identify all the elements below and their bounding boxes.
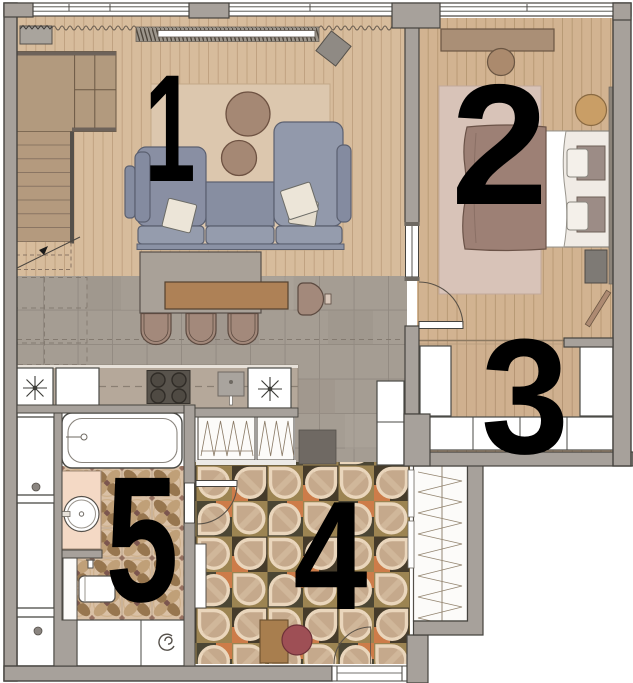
svg-text:4: 4 — [294, 469, 368, 642]
svg-text:1: 1 — [145, 43, 196, 214]
svg-text:5: 5 — [106, 439, 179, 639]
svg-text:2: 2 — [451, 49, 548, 241]
svg-text:3: 3 — [481, 305, 569, 488]
